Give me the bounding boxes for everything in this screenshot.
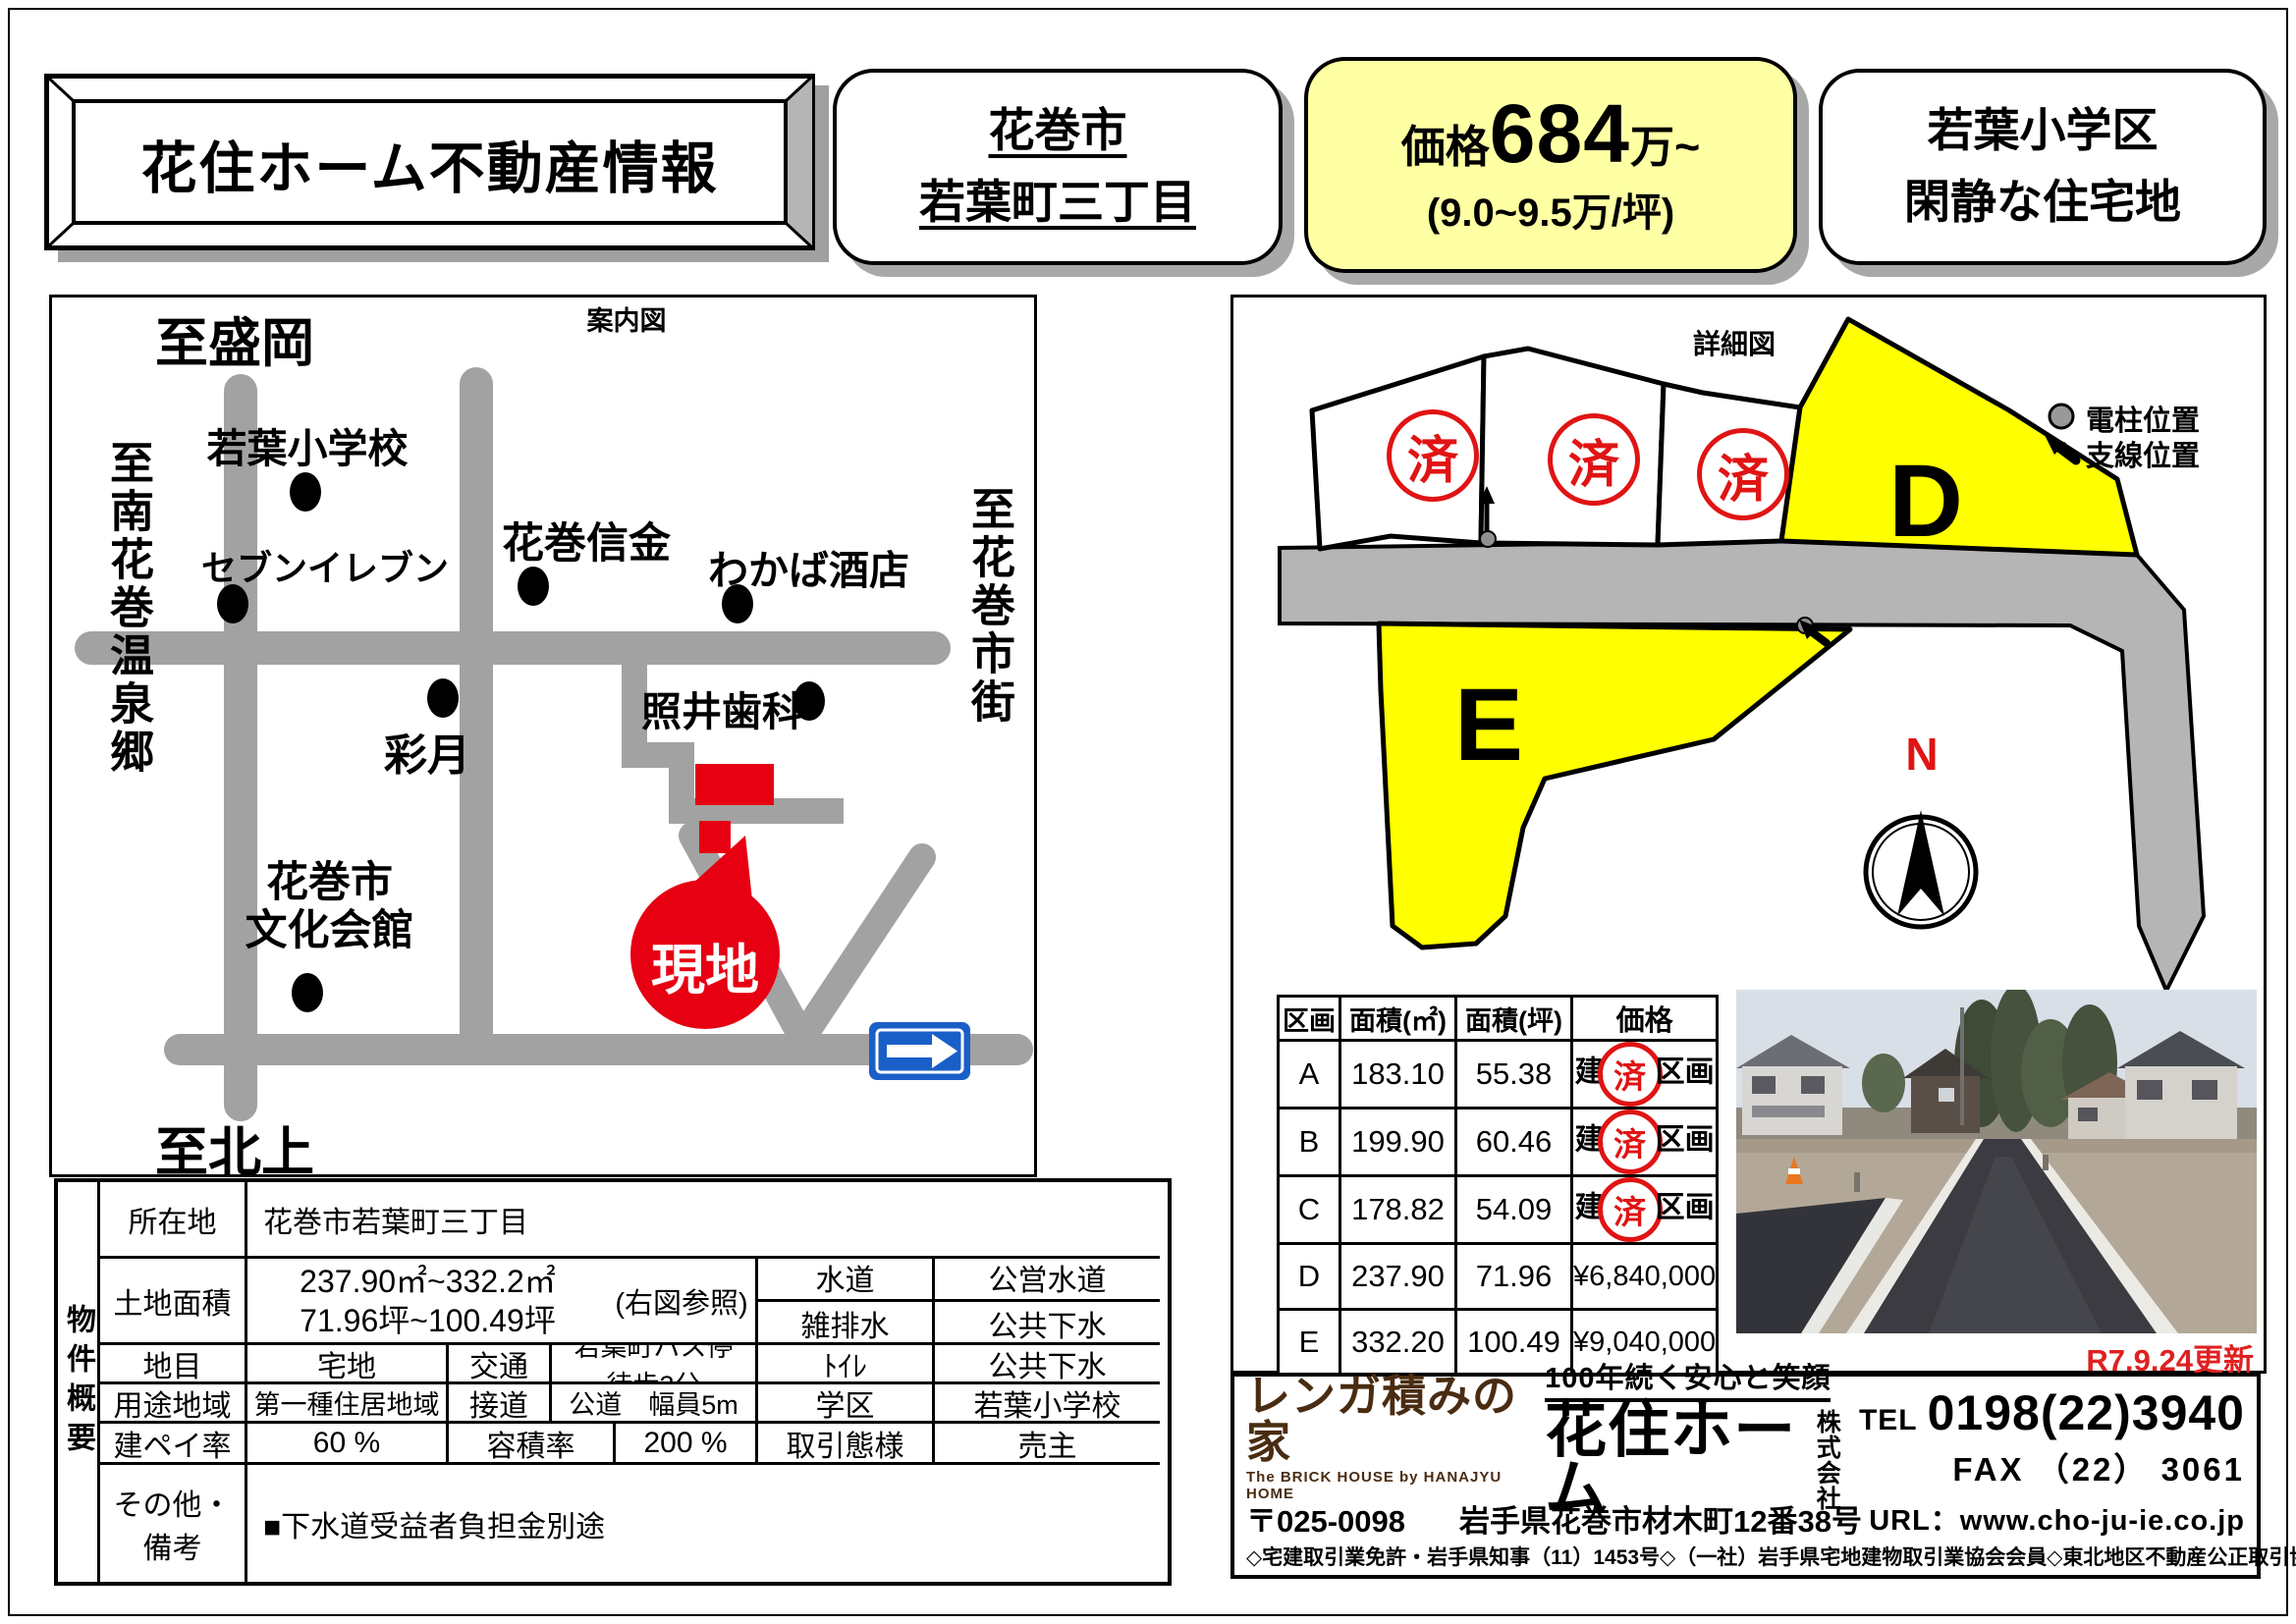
row-chimoku: 地目 宅地 交通 若葉町バス停 徒歩3分 ﾄｲﾚ 公共下水 bbox=[100, 1345, 1160, 1384]
suido-value: 公営水道 bbox=[935, 1259, 1160, 1299]
row-location: 所在地 花巻市若葉町三丁目 bbox=[100, 1182, 1160, 1259]
price-line: 価格684万~ bbox=[1401, 92, 1700, 175]
table-row: C 178.82 54.09 建済区画 bbox=[1279, 1176, 1718, 1244]
map-label-to-morioka: 至盛岡 bbox=[155, 299, 314, 377]
company-address: 岩手県花巻市材木町12番38号 bbox=[1459, 1496, 1862, 1541]
legend-wire-label: 支線位置 bbox=[2086, 433, 2200, 474]
other-value: ■下水道受益者負担金別途 bbox=[247, 1465, 1160, 1582]
row-yoto: 用途地域 第一種住居地域 接道 公道 幅員5m 学区 若葉小学校 bbox=[100, 1384, 1160, 1424]
other-label: その他・備考 bbox=[100, 1465, 247, 1582]
row-land-area: 土地面積 237.90㎡~332.2㎡ 71.96坪~100.49坪 (右図参照… bbox=[100, 1259, 1160, 1345]
map-label-to-kitakami: 至北上 bbox=[155, 1109, 314, 1186]
sold-stamp-3: 済 bbox=[1697, 428, 1789, 520]
zohaisui-value: 公共下水 bbox=[935, 1302, 1160, 1342]
setsudo-label: 接道 bbox=[449, 1384, 552, 1421]
suido-label: 水道 bbox=[758, 1259, 935, 1299]
map-label-wakaba-sakaten: わかば酒店 bbox=[708, 537, 909, 596]
map-label-to-hanamaki-shigai: 至花巻市街 bbox=[957, 486, 1021, 810]
feature-line2: 閑静な住宅地 bbox=[1904, 167, 2181, 239]
site-photo bbox=[1736, 990, 2257, 1333]
gakku-value: 若葉小学校 bbox=[935, 1384, 1160, 1421]
location-badge: 花巻市 若葉町三丁目 bbox=[833, 69, 1283, 265]
map-ref-note: (右図参照) bbox=[608, 1280, 755, 1322]
location-line1: 花巻市 bbox=[989, 95, 1127, 167]
sold-stamp-icon: 済 bbox=[1598, 1042, 1663, 1107]
land-area-value: 237.90㎡~332.2㎡ 71.96坪~100.49坪 bbox=[247, 1262, 608, 1340]
price-value: 684 bbox=[1490, 92, 1630, 175]
table-row: D 237.90 71.96 ¥6,840,000 bbox=[1279, 1244, 1718, 1310]
map-label-wakaba-elementary: 若葉小学校 bbox=[199, 415, 415, 474]
chimoku-value: 宅地 bbox=[247, 1345, 449, 1381]
price-badge: 価格684万~ (9.0~9.5万/坪) bbox=[1304, 57, 1797, 273]
compass-n-label: N bbox=[1897, 728, 1946, 781]
real-estate-flyer: 花住ホーム不動産情報 花巻市 若葉町三丁目 価格684万~ (9.0~9.5万/… bbox=[0, 0, 2296, 1624]
brand-logo: レンガ積みの家 The BRICK HOUSE by HANAJYU HOME bbox=[1246, 1373, 1545, 1503]
toilet-label: ﾄｲﾚ bbox=[758, 1345, 935, 1381]
table-header-row: 区画 面積(㎡) 面積(坪) 価格 bbox=[1279, 997, 1718, 1041]
yoto-value: 第一種住居地域 bbox=[247, 1384, 449, 1421]
company-slogan: 100年続く安心と笑顔 bbox=[1545, 1355, 1831, 1402]
zohaisui-label: 雑排水 bbox=[758, 1302, 935, 1342]
title-box: 花住ホーム不動産情報 bbox=[44, 74, 815, 250]
one-way-sign-icon bbox=[869, 1022, 970, 1080]
lot-price-table: 区画 面積(㎡) 面積(坪) 価格 A 183.10 55.38 建済区画 B … bbox=[1277, 995, 1719, 1377]
fax-number: FAX （22） 3061 bbox=[1859, 1443, 2245, 1490]
sold-stamp-icon: 済 bbox=[1598, 1177, 1663, 1242]
map-label-bunka-kaikan: 花巻市 文化会館 bbox=[229, 859, 430, 956]
detail-map-title: 詳細図 bbox=[1651, 323, 1818, 362]
kotsu-label: 交通 bbox=[449, 1345, 552, 1381]
company-url: URL：www.cho-ju-ie.co.jp bbox=[1869, 1497, 2245, 1539]
land-area-label: 土地面積 bbox=[100, 1259, 247, 1342]
tel-number: TEL0198(22)3940 bbox=[1859, 1384, 2245, 1441]
site-balloon-label: 現地 bbox=[627, 926, 784, 1004]
table-row: B 199.90 60.46 建済区画 bbox=[1279, 1109, 1718, 1176]
postal-code: 〒025-0098 bbox=[1246, 1496, 1405, 1541]
price-per-tsubo: (9.0~9.5万/坪) bbox=[1427, 181, 1674, 238]
map-label-terui-dental: 照井歯科 bbox=[641, 678, 802, 737]
map-label-saigetsu: 彩月 bbox=[384, 720, 470, 783]
guide-map: 案内図 至盛岡 若葉小学校 セブンイレブン 花巻信金 わかば酒店 照井歯科 彩月… bbox=[49, 295, 1037, 1177]
price-suffix: 万~ bbox=[1630, 111, 1700, 175]
gakku-label: 学区 bbox=[758, 1384, 935, 1421]
location-value: 花巻市若葉町三丁目 bbox=[247, 1182, 1160, 1256]
detail-panel: 詳細図 D E N 済 済 済 電柱位置 支線位置 区画 面積(㎡) 面積(坪)… bbox=[1230, 295, 2267, 1374]
contact-block: TEL0198(22)3940 FAX （22） 3061 bbox=[1859, 1384, 2245, 1490]
company-box: レンガ積みの家 The BRICK HOUSE by HANAJYU HOME … bbox=[1230, 1373, 2261, 1579]
torihiki-label: 取引態様 bbox=[758, 1424, 935, 1462]
sold-stamp-1: 済 bbox=[1387, 409, 1479, 502]
property-summary-side-label: 物件概要 bbox=[58, 1182, 100, 1582]
license-line: ◇宅建取引業免許・岩手県知事（11）1453号◇（一社）岩手県宅地建物取引業協会… bbox=[1246, 1542, 2245, 1571]
kenpei-value: 60 % bbox=[247, 1424, 449, 1462]
table-row: A 183.10 55.38 建済区画 bbox=[1279, 1041, 1718, 1109]
row-other: その他・備考 ■下水道受益者負担金別途 bbox=[100, 1465, 1160, 1582]
yoto-label: 用途地域 bbox=[100, 1384, 247, 1421]
toilet-value: 公共下水 bbox=[935, 1345, 1160, 1381]
kenpei-label: 建ペイ率 bbox=[100, 1424, 247, 1462]
location-line2: 若葉町三丁目 bbox=[919, 167, 1196, 239]
sold-stamp-icon: 済 bbox=[1598, 1110, 1663, 1174]
yoseki-label: 容積率 bbox=[449, 1424, 616, 1462]
price-prefix: 価格 bbox=[1401, 111, 1490, 175]
torihiki-value: 売主 bbox=[935, 1424, 1160, 1462]
yoseki-value: 200 % bbox=[616, 1424, 758, 1462]
location-label: 所在地 bbox=[100, 1182, 247, 1256]
north-compass-icon bbox=[1866, 810, 1976, 927]
feature-badge: 若葉小学区 閑静な住宅地 bbox=[1819, 69, 2267, 265]
lot-e-letter: E bbox=[1435, 667, 1543, 785]
row-kenpei: 建ペイ率 60 % 容積率 200 % 取引態様 売主 bbox=[100, 1424, 1160, 1465]
pole-legend-icon bbox=[2050, 405, 2073, 428]
feature-line1: 若葉小学区 bbox=[1928, 95, 2159, 167]
sold-stamp-2: 済 bbox=[1548, 413, 1640, 506]
roads bbox=[91, 384, 1017, 1105]
property-summary-table: 物件概要 所在地 花巻市若葉町三丁目 土地面積 237.90㎡~332.2㎡ 7… bbox=[54, 1178, 1172, 1586]
map-label-hanamaki-shinkin: 花巻信金 bbox=[502, 510, 671, 570]
chimoku-label: 地目 bbox=[100, 1345, 247, 1381]
kotsu-value: 若葉町バス停 徒歩3分 bbox=[552, 1345, 758, 1381]
page-title: 花住ホーム不動産情報 bbox=[74, 103, 786, 225]
guide-map-title: 案内図 bbox=[543, 299, 710, 338]
lot-d-letter: D bbox=[1872, 443, 1980, 561]
map-label-to-minami-hanamaki-onsen: 至南花巻温泉郷 bbox=[96, 440, 160, 901]
map-label-seven-eleven: セブンイレブン bbox=[201, 540, 412, 591]
setsudo-value: 公道 幅員5m bbox=[552, 1384, 758, 1421]
